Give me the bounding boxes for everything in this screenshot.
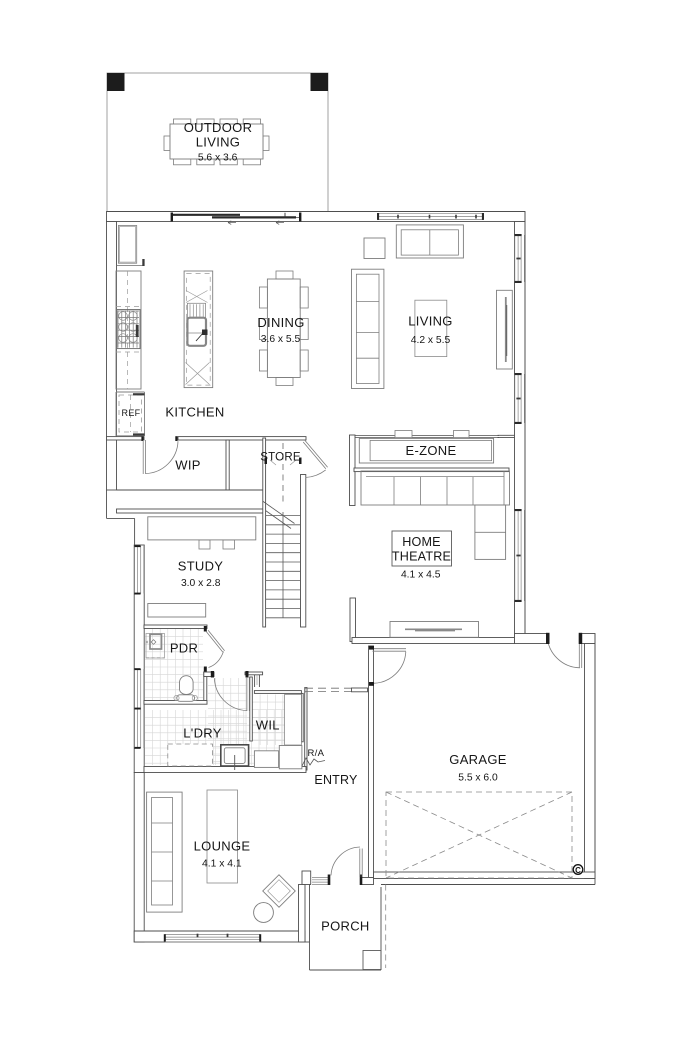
svg-text:WIL: WIL [256,718,280,733]
svg-text:STUDY: STUDY [178,559,224,574]
svg-text:THEATRE: THEATRE [392,550,451,564]
svg-text:STORE: STORE [260,451,301,463]
svg-text:3.6 x 5.5: 3.6 x 5.5 [261,334,301,345]
svg-text:OUTDOOR: OUTDOOR [184,120,253,135]
svg-text:LOUNGE: LOUNGE [194,839,251,854]
svg-text:PORCH: PORCH [321,919,369,934]
svg-text:E-ZONE: E-ZONE [406,443,457,458]
svg-text:C: C [575,866,581,875]
svg-text:HOME: HOME [402,535,441,549]
svg-text:PDR: PDR [170,641,198,656]
svg-text:5.6 x 3.6: 5.6 x 3.6 [198,153,238,164]
svg-text:3.0 x 2.8: 3.0 x 2.8 [181,578,221,589]
svg-text:LIVING: LIVING [196,135,240,150]
svg-text:5.5 x 6.0: 5.5 x 6.0 [458,773,498,784]
svg-text:GARAGE: GARAGE [449,752,506,767]
svg-text:ENTRY: ENTRY [314,773,358,787]
svg-text:KITCHEN: KITCHEN [165,405,224,420]
svg-text:4.1 x 4.5: 4.1 x 4.5 [401,569,441,580]
svg-text:R/A: R/A [308,748,325,759]
svg-text:REF: REF [122,408,141,418]
svg-text:4.1 x 4.1: 4.1 x 4.1 [202,859,242,870]
svg-text:LIVING: LIVING [408,314,452,329]
svg-text:4.2 x 5.5: 4.2 x 5.5 [411,335,451,346]
svg-text:WIP: WIP [175,458,200,473]
svg-text:DINING: DINING [257,315,304,330]
svg-text:L'DRY: L'DRY [183,726,221,741]
